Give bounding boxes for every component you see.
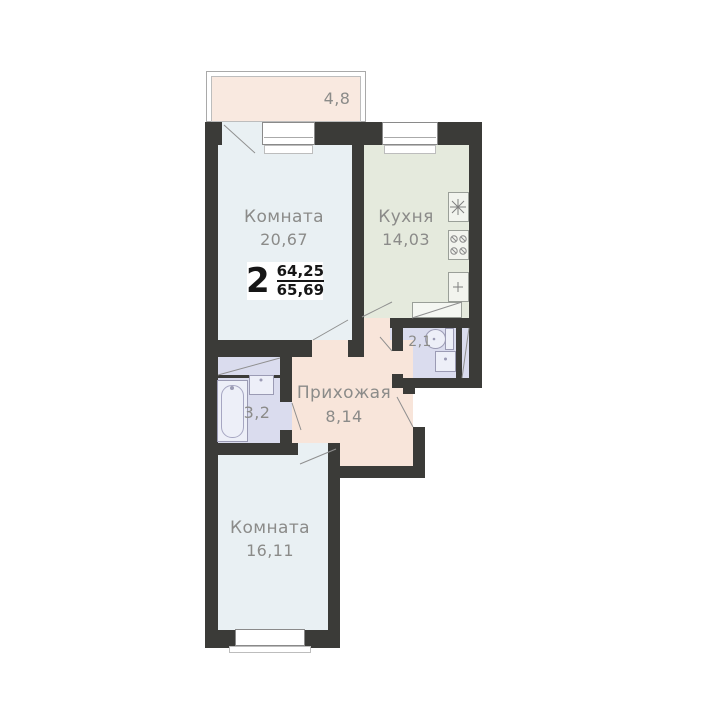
wall-segment	[280, 430, 292, 443]
hallway-area-label: 8,14	[272, 407, 416, 426]
hallway-name-label: Прихожая	[272, 383, 416, 403]
wall-right-exterior	[469, 122, 482, 388]
wall-segment	[205, 443, 298, 455]
window-frame-line	[264, 137, 313, 138]
balcony-area-label: 4,8	[297, 89, 377, 108]
area-fraction: 64,25 65,69	[277, 263, 324, 300]
vent-shaft-icon	[462, 328, 469, 378]
washbasin-icon	[435, 351, 456, 372]
kitchen-name-label: Кухня	[346, 207, 466, 227]
toilet-tank	[445, 328, 454, 350]
window-icon	[382, 122, 438, 145]
kitchen-area-label: 14,03	[346, 230, 466, 249]
washbasin-icon	[249, 375, 274, 395]
wc-area-label: 2,1	[398, 334, 442, 350]
area-with-balcony: 65,69	[277, 282, 324, 299]
floor-plan: 4,8 Комната 20,67 Кухня 14,03 2,1 Прихож…	[0, 0, 726, 726]
plan-summary-badge: 2 64,25 65,69	[247, 262, 323, 300]
window-icon	[235, 629, 305, 646]
wall-segment	[328, 466, 422, 478]
vent-shaft-icon	[412, 302, 462, 318]
window-frame-line	[384, 137, 436, 138]
window-icon	[262, 122, 315, 145]
living-room-name-label: Комната	[214, 207, 354, 227]
wall-segment	[390, 318, 482, 328]
window-sill	[229, 646, 311, 653]
living-room-area-label: 20,67	[214, 230, 354, 249]
window-sill	[264, 145, 313, 154]
wall-segment	[352, 318, 362, 330]
wall-segment	[205, 340, 312, 357]
wall-segment	[348, 340, 364, 357]
wall-segment	[315, 122, 382, 145]
wall-segment	[413, 427, 425, 478]
window-sill	[384, 145, 436, 154]
bedroom-name-label: Комната	[200, 518, 340, 538]
fixture-plus-icon	[448, 272, 469, 302]
bathroom-area-label: 3,2	[225, 403, 289, 422]
bedroom-area-label: 16,11	[200, 541, 340, 560]
rooms-count: 2	[246, 264, 270, 298]
area-total: 64,25	[277, 263, 324, 282]
